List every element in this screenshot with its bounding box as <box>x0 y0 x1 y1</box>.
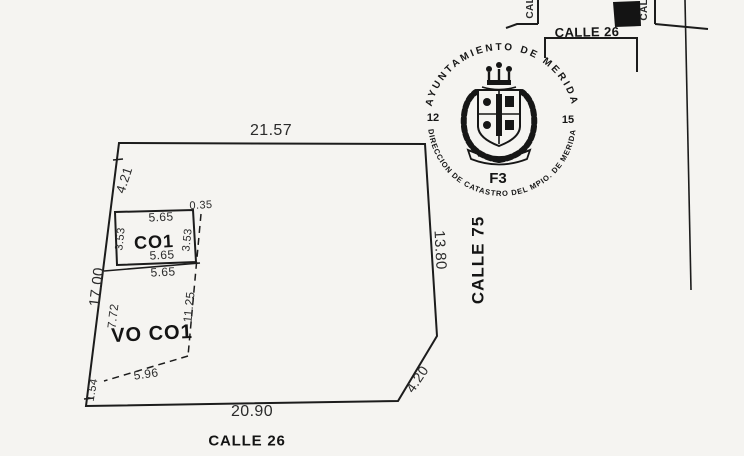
vo-co1-label: VO CO1 <box>111 322 194 346</box>
shield-charge-4 <box>505 120 514 130</box>
minimap-curb-right <box>655 24 708 29</box>
dim-bottom: 20.90 <box>231 404 273 420</box>
crown-band <box>487 80 511 85</box>
dim-co1-gap: 0.35 <box>189 200 213 212</box>
parcel-outline <box>86 143 437 406</box>
cadastral-sketch-page: AYUNTAMIENTO DE MERIDA DIRECCION DE CATA… <box>0 0 744 456</box>
seal-top-arc-text: AYUNTAMIENTO DE MERIDA <box>424 42 580 108</box>
minimap-street-left-label: CALLE <box>526 0 536 19</box>
dim-co1-top: 5.65 <box>148 210 174 223</box>
shield-center-column <box>496 94 502 136</box>
seal-left-number: 12 <box>427 112 439 124</box>
minimap-street-horizontal-label: CALLE 26 <box>555 25 620 39</box>
seal-bottom-arc-text: DIRECCION DE CATASTRO DEL MPIO. DE MERID… <box>426 128 577 198</box>
shield-charge-3 <box>483 121 491 129</box>
dim-co1-bottom: 5.65 <box>149 248 175 261</box>
dim-co1-below: 5.65 <box>150 265 176 278</box>
street-right-label: CALLE 75 <box>470 216 487 304</box>
crown-ball-center <box>496 62 502 68</box>
dim-vo-right: 11.25 <box>181 291 196 323</box>
linework-layer <box>0 0 744 456</box>
seal-right-number: 15 <box>562 114 574 126</box>
minimap-street-far-right-line <box>685 0 691 290</box>
street-bottom-label: CALLE 26 <box>208 434 285 449</box>
dim-vo-bottom: 5.96 <box>133 366 159 381</box>
crown-prongs <box>489 69 509 80</box>
seal-coat-of-arms <box>464 62 534 165</box>
seal-zone-code: F3 <box>489 170 507 187</box>
shield-charge-1 <box>483 98 491 106</box>
minimap-street-right-label: CALLE <box>640 0 650 21</box>
crown-ball-left <box>486 66 492 72</box>
dim-right: 13.80 <box>431 230 448 270</box>
crown-ball-right <box>506 66 512 72</box>
left-edge-tick-top <box>113 159 123 160</box>
catastro-stamp: AYUNTAMIENTO DE MERIDA DIRECCION DE CATA… <box>412 32 592 212</box>
dim-top: 21.57 <box>250 123 292 139</box>
minimap-curb-left <box>506 24 538 28</box>
shield-charge-2 <box>505 96 514 107</box>
